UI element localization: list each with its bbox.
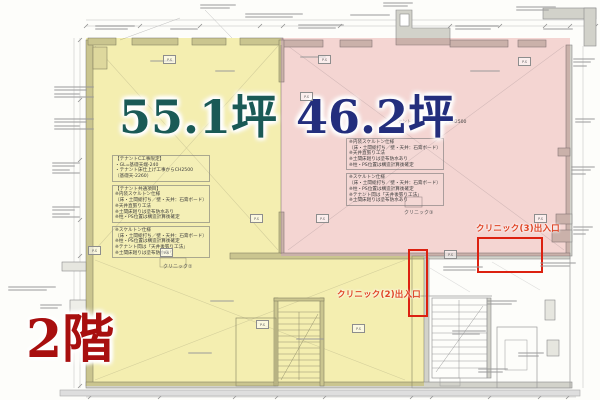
ps-shaft-box: P.S bbox=[352, 324, 365, 333]
micro-annotation bbox=[200, 4, 236, 9]
floorplan-canvas: 【テナントC工事限定】 ・GL=基礎天端-240 ・テナント床仕上げ工事からCH… bbox=[0, 0, 600, 400]
micro-annotation bbox=[54, 86, 94, 98]
ps-shaft-box: P.S bbox=[163, 55, 176, 64]
micro-annotation bbox=[215, 70, 235, 72]
note-block-tenant-common: 【テナント共通項目】 ※内装スケルトン仕様 （床・土間総打ち／壁・天井：石膏ボー… bbox=[112, 185, 210, 223]
clinic3-entrance-highlight bbox=[477, 237, 543, 273]
micro-annotation bbox=[573, 58, 595, 67]
micro-annotation bbox=[350, 14, 390, 16]
micro-annotation bbox=[298, 24, 344, 29]
ps-shaft-box: P.S bbox=[318, 55, 331, 64]
micro-annotation bbox=[170, 28, 198, 30]
micro-annotation bbox=[245, 13, 303, 18]
area-size-pink: 46.2坪 bbox=[296, 94, 454, 140]
micro-annotation bbox=[470, 70, 500, 72]
micro-annotation bbox=[487, 300, 517, 305]
clinic3-room-label: クリニック③ bbox=[404, 209, 433, 216]
staircase-right bbox=[432, 300, 487, 378]
micro-annotation bbox=[40, 304, 62, 309]
micro-annotation bbox=[443, 266, 483, 271]
micro-annotation bbox=[478, 368, 508, 373]
ps-shaft-box: P.S bbox=[534, 214, 547, 223]
note-line: （床・土間総打ち／壁・天井：石膏ボード） bbox=[349, 181, 441, 187]
micro-annotation bbox=[95, 25, 135, 30]
ps-shaft-box: P.S bbox=[88, 246, 101, 255]
clinic2-entrance-label: クリニック(2)出入口 bbox=[337, 288, 421, 300]
note-line: ※土間床廻りは塗布防水あり bbox=[349, 198, 441, 204]
clinic2-entrance-highlight bbox=[408, 249, 428, 317]
micro-annotation bbox=[518, 352, 544, 357]
micro-annotation bbox=[296, 338, 324, 340]
ps-shaft-box: P.S bbox=[518, 57, 531, 66]
ps-shaft-box: P.S bbox=[256, 320, 269, 329]
note-line: ※柱・PS位置は構造計算後確定 bbox=[349, 163, 441, 169]
note-line: ※柱・PS位置は構造計算後確定 bbox=[115, 215, 207, 221]
ps-shaft-box: P.S bbox=[160, 248, 173, 257]
micro-annotation bbox=[188, 352, 212, 354]
ps-shaft-box: P.S bbox=[300, 92, 313, 101]
ps-shaft-box: P.S bbox=[316, 214, 329, 223]
area-size-yellow: 55.1坪 bbox=[119, 94, 277, 140]
note-line: （床・土間総打ち／壁・天井：石膏ボード） bbox=[115, 198, 207, 204]
note-line: （基礎天-2260） bbox=[115, 174, 207, 180]
ps-shaft-box: P.S bbox=[444, 250, 457, 259]
ps-shaft-box: P.S bbox=[250, 214, 263, 223]
micro-annotation bbox=[575, 118, 595, 123]
micro-annotation bbox=[540, 262, 576, 267]
micro-annotation bbox=[8, 286, 56, 291]
clinic2-room-label: クリニック② bbox=[163, 263, 192, 270]
micro-annotation bbox=[543, 28, 573, 30]
clinic3-entrance-label: クリニック(3)出入口 bbox=[476, 222, 560, 234]
micro-annotation bbox=[571, 166, 595, 175]
micro-annotation bbox=[455, 25, 499, 30]
note-block-tenant-c: 【テナントC工事限定】 ・GL=基礎天端-240 ・テナント床仕上げ工事からCH… bbox=[112, 155, 210, 182]
micro-annotation bbox=[210, 300, 234, 302]
micro-annotation bbox=[452, 330, 486, 335]
notes-yellow-tenant: 【テナントC工事限定】 ・GL=基礎天端-240 ・テナント床仕上げ工事からCH… bbox=[112, 155, 210, 261]
notes-pink-tenant: ※内装スケルトン仕様 （床・土間総打ち／壁・天井：石膏ボード） ※天井直張り工法… bbox=[346, 138, 444, 209]
micro-annotation bbox=[573, 226, 593, 235]
micro-annotation bbox=[516, 6, 556, 11]
note-block-pink-b: ※スケルトン仕様 （床・土間総打ち／壁・天井：石膏ボード） ※柱・PS位置は構造… bbox=[346, 173, 444, 205]
micro-annotation bbox=[52, 206, 80, 218]
micro-annotation bbox=[54, 118, 94, 130]
floor-label: 2階 bbox=[26, 314, 114, 366]
micro-annotation bbox=[383, 2, 413, 7]
staircase-center bbox=[278, 312, 320, 380]
micro-annotation bbox=[52, 162, 80, 174]
